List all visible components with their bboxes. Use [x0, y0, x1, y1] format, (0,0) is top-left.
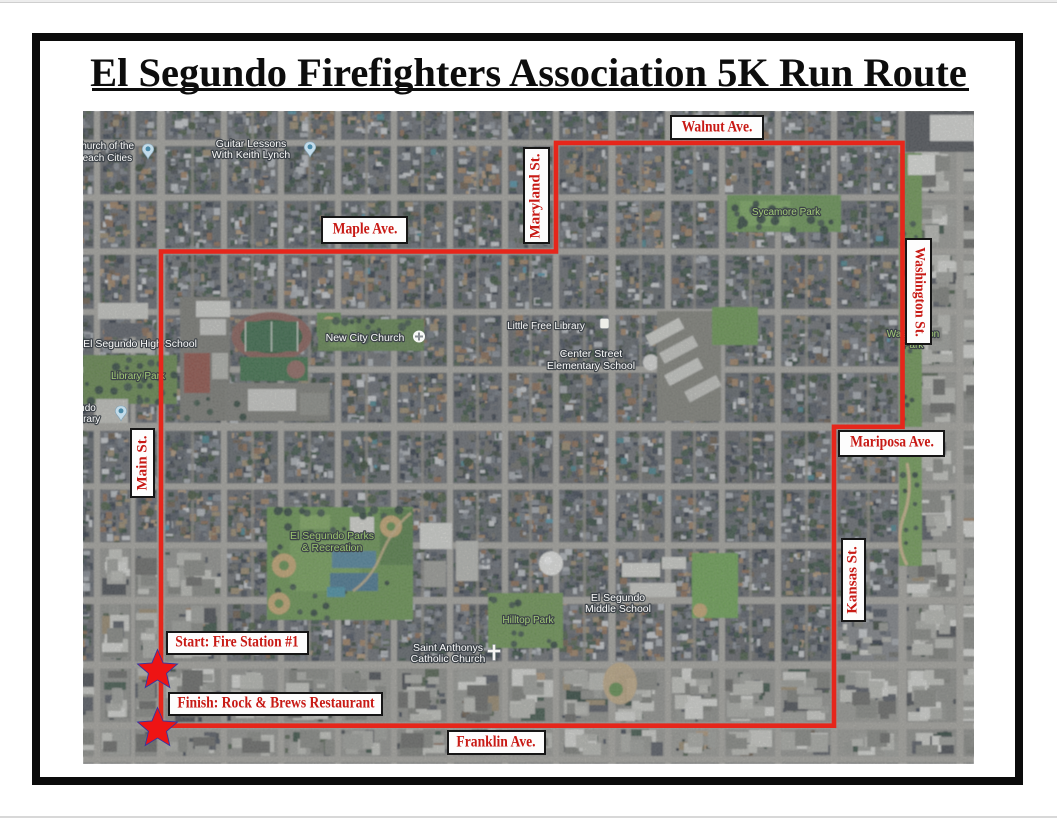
svg-text:With Keith Lynch: With Keith Lynch — [212, 149, 291, 161]
svg-text:Public Library: Public Library — [83, 414, 100, 425]
svg-text:& Recreation: & Recreation — [302, 542, 363, 554]
svg-text:Little Free Library: Little Free Library — [507, 321, 585, 332]
svg-text:Hilltop Park: Hilltop Park — [502, 615, 554, 626]
svg-text:Sycamore Park: Sycamore Park — [752, 207, 821, 218]
svg-text:Library Park: Library Park — [111, 371, 166, 382]
svg-text:New City Church: New City Church — [326, 332, 405, 344]
svg-text:Elementary School: Elementary School — [547, 360, 635, 372]
svg-text:El Segundo Parks: El Segundo Parks — [290, 530, 374, 542]
svg-text:El Segundo High School: El Segundo High School — [83, 338, 197, 350]
svg-text:Middle School: Middle School — [585, 603, 651, 615]
svg-text:Center Street: Center Street — [560, 348, 623, 360]
svg-text:Catholic Church: Catholic Church — [411, 653, 486, 665]
svg-text:El Segundo: El Segundo — [83, 403, 96, 414]
svg-text:Beach Cities: Beach Cities — [83, 153, 132, 164]
svg-text:Church of the: Church of the — [83, 141, 134, 152]
